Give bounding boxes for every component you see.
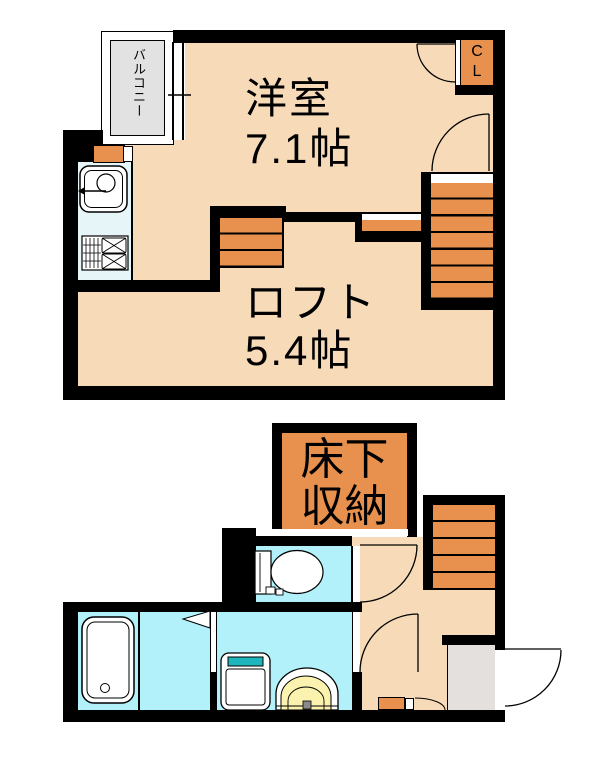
- loft-name-label: ロフト: [245, 279, 377, 327]
- folding-door-strip: [210, 612, 217, 672]
- storage-label-line2: 収納: [282, 483, 407, 530]
- storage-wall-left: [272, 423, 282, 529]
- bathroom: [78, 612, 210, 710]
- storage-label-line1: 床下: [282, 436, 407, 483]
- toilet-top-wall: [256, 536, 352, 546]
- loft-label-block: ロフト 5.4帖: [245, 279, 377, 375]
- upper-wall-bottom: [63, 386, 505, 400]
- room-name-label: 洋室: [245, 74, 353, 124]
- lower-wall-left: [63, 602, 78, 722]
- storage-wall-right: [407, 423, 417, 537]
- lower-wall-right: [495, 495, 505, 650]
- bath-divider-line: [138, 612, 140, 710]
- loft-mid-wall: [284, 212, 362, 222]
- lower-wall-bottom: [63, 710, 505, 722]
- washroom-door-strip: [352, 612, 360, 672]
- entrance-door-arc: [505, 649, 561, 706]
- landing-strip: [362, 212, 421, 220]
- lower-stairs-left-wall: [423, 495, 433, 590]
- entrance-top-wall: [442, 635, 495, 645]
- washroom: [217, 612, 352, 710]
- loft-steps-left-wall: [210, 206, 220, 286]
- closet-label-line1: C: [461, 42, 493, 62]
- storage-label: 床下 収納: [282, 436, 407, 530]
- kitchen-area: [78, 162, 133, 280]
- loft-size-label: 5.4帖: [245, 327, 377, 375]
- storage-wall-top: [272, 423, 417, 433]
- shoe-step-end: [405, 698, 414, 710]
- upper-stairs-bottom-wall: [421, 299, 505, 310]
- washroom-door-stub: [352, 672, 362, 710]
- folding-door-stub: [210, 672, 217, 710]
- closet-label-line2: L: [461, 62, 493, 82]
- room-label-block: 洋室 7.1帖: [245, 74, 353, 174]
- upper-wall-left: [63, 130, 78, 400]
- lower-stairs-top-wall: [423, 495, 505, 505]
- kitchen-counter: [93, 145, 125, 163]
- floor-plan-page: バルコニー C L 洋室 7.1帖 ロフト 5.4帖: [0, 0, 605, 783]
- upper-staircase: [431, 183, 493, 300]
- balcony-label: バルコニー: [129, 48, 148, 134]
- landing-step: [362, 220, 421, 231]
- toilet-bottom-wall: [222, 602, 362, 612]
- loft-steps-top-wall: [210, 206, 286, 218]
- kitchen-side-stub: [78, 143, 93, 163]
- kitchen-bottom-wall: [63, 280, 220, 292]
- toilet-left-column: [222, 528, 256, 612]
- landing-bottom-wall: [355, 231, 423, 242]
- upper-stairs-top-strip: [431, 172, 493, 183]
- room-size-label: 7.1帖: [245, 124, 353, 174]
- entrance: [447, 645, 495, 710]
- toilet-room: [256, 546, 352, 602]
- lower-staircase: [433, 505, 495, 590]
- closet-label: C L: [461, 42, 493, 82]
- balcony-window: [172, 42, 184, 140]
- toilet-door-strip: [352, 546, 360, 602]
- shoe-step: [378, 697, 405, 710]
- bath-top-wall: [63, 602, 222, 612]
- loft-steps: [220, 218, 284, 268]
- kitchen-counter-end: [123, 146, 133, 162]
- closet-bottom-wall: [455, 85, 505, 95]
